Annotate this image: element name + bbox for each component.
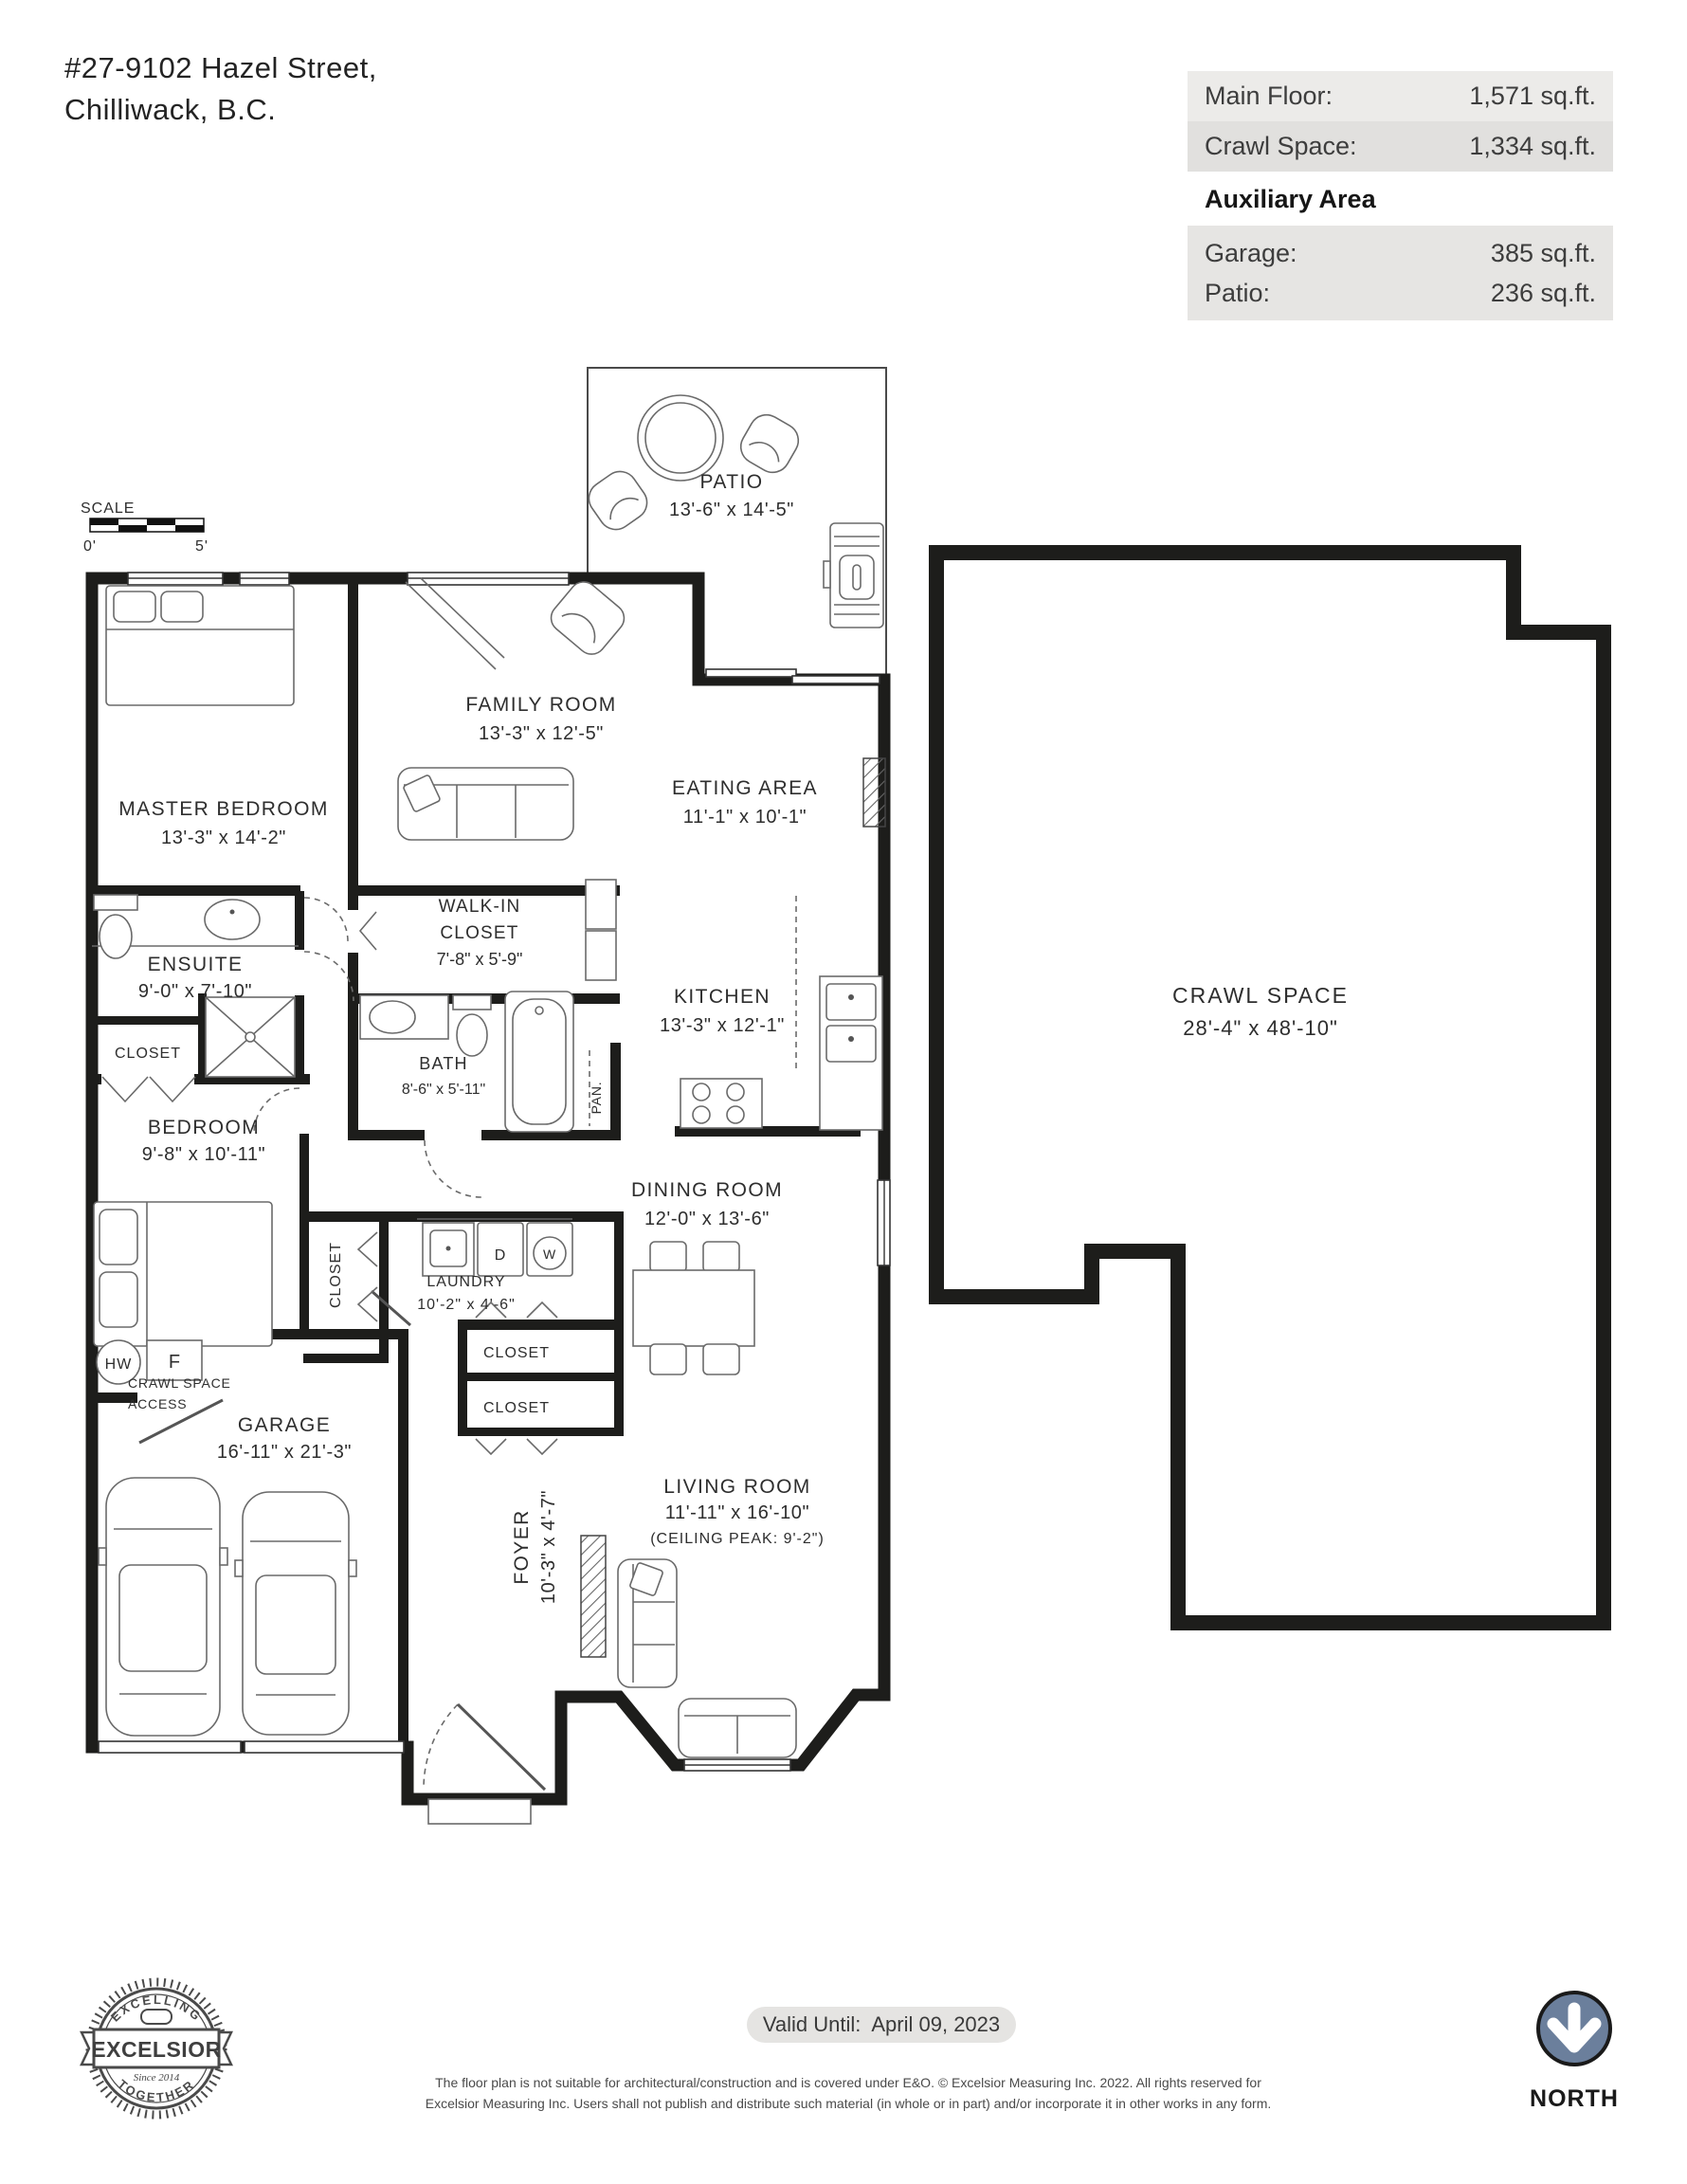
living-room-loveseat	[679, 1699, 796, 1757]
svg-text:12'-0" x 13'-6": 12'-0" x 13'-6"	[644, 1209, 770, 1229]
valid-until-text: Valid Until: April 09, 2023	[763, 2012, 1000, 2037]
svg-text:13'-3" x 14'-2": 13'-3" x 14'-2"	[161, 828, 286, 848]
foyer-half-wall	[581, 1536, 606, 1657]
washer-label: W	[543, 1247, 556, 1262]
svg-text:11'-11" x 16'-10": 11'-11" x 16'-10"	[665, 1502, 810, 1523]
hot-water-tank-label: HW	[105, 1356, 133, 1373]
patio-table	[638, 395, 723, 481]
svg-text:MASTER BEDROOM: MASTER BEDROOM	[118, 798, 328, 820]
svg-text:LIVING ROOM: LIVING ROOM	[663, 1476, 810, 1498]
svg-text:16'-11" x 21'-3": 16'-11" x 21'-3"	[217, 1442, 352, 1463]
furnace-label: F	[169, 1352, 180, 1373]
svg-text:7'-8" x 5'-9": 7'-8" x 5'-9"	[437, 950, 523, 969]
svg-text:9'-0" x 7'-10": 9'-0" x 7'-10"	[138, 981, 252, 1002]
svg-text:CLOSET: CLOSET	[440, 923, 518, 943]
disclaimer-line-1: The floor plan is not suitable for archi…	[365, 2072, 1332, 2093]
scale-bar: SCALE 0' 5'	[81, 500, 209, 555]
window	[408, 573, 569, 585]
window	[240, 573, 289, 585]
bbq-grill	[824, 523, 883, 628]
closet-label-bedroom: CLOSET	[328, 1242, 344, 1308]
bedroom-bed	[94, 1202, 272, 1346]
svg-text:11'-1" x 10'-1": 11'-1" x 10'-1"	[683, 807, 807, 828]
svg-text:13'-3" x 12'-5": 13'-3" x 12'-5"	[479, 723, 604, 744]
room-label-walk-in-closet: WALK-IN CLOSET 7'-8" x 5'-9"	[437, 897, 523, 969]
svg-text:CRAWL SPACE: CRAWL SPACE	[128, 1375, 231, 1391]
garage-doors	[99, 1741, 404, 1753]
svg-text:10'-3" x 4'-7": 10'-3" x 4'-7"	[538, 1490, 559, 1604]
svg-text:(CEILING PEAK: 9'-2"): (CEILING PEAK: 9'-2")	[650, 1531, 825, 1547]
svg-text:9'-8" x 10'-11": 9'-8" x 10'-11"	[142, 1144, 266, 1165]
pantry-label: PAN.	[589, 1082, 604, 1115]
svg-text:CRAWL SPACE: CRAWL SPACE	[1172, 983, 1349, 1008]
room-label-living-room: LIVING ROOM 11'-11" x 16'-10" (CEILING P…	[650, 1476, 825, 1547]
exterior-step	[863, 758, 885, 827]
front-steps	[428, 1799, 531, 1824]
closet-label-hall-1: CLOSET	[483, 1345, 550, 1361]
svg-text:BATH: BATH	[419, 1054, 467, 1073]
window	[128, 573, 223, 585]
window	[878, 1180, 890, 1265]
crawl-space-outline	[936, 553, 1604, 1623]
svg-text:WALK-IN: WALK-IN	[439, 897, 521, 917]
svg-text:EATING AREA: EATING AREA	[672, 777, 818, 799]
excelsior-logo: EXCELLING EXCELSIOR Since 2014 TOGETHER	[74, 1970, 240, 2136]
scale-end: 5'	[195, 538, 209, 555]
floorplan-drawing: SCALE 0' 5'	[0, 0, 1687, 2184]
room-name-patio: PATIO	[700, 471, 764, 493]
dryer-label: D	[495, 1247, 507, 1264]
svg-text:8'-6" x 5'-11": 8'-6" x 5'-11"	[402, 1082, 485, 1098]
master-bed	[106, 586, 294, 705]
svg-text:10'-2" x 4'-6": 10'-2" x 4'-6"	[417, 1297, 516, 1313]
north-label: NORTH	[1530, 2085, 1619, 2112]
window	[684, 1759, 790, 1771]
living-room-sofa	[618, 1559, 677, 1687]
svg-text:13'-3" x 12'-1": 13'-3" x 12'-1"	[660, 1015, 785, 1036]
scale-title: SCALE	[81, 500, 135, 517]
logo-since: Since 2014	[134, 2072, 180, 2084]
svg-text:FOYER: FOYER	[511, 1509, 533, 1584]
family-room-sofa	[398, 768, 573, 840]
svg-text:LAUNDRY: LAUNDRY	[426, 1274, 505, 1290]
svg-text:ACCESS: ACCESS	[128, 1396, 187, 1411]
svg-text:KITCHEN: KITCHEN	[674, 986, 771, 1008]
scale-start: 0'	[83, 538, 97, 555]
garage-car-1	[99, 1478, 227, 1736]
closet-label-hall-2: CLOSET	[483, 1400, 550, 1416]
room-dims-patio: 13'-6" x 14'-5"	[669, 500, 794, 520]
disclaimer: The floor plan is not suitable for archi…	[365, 2072, 1332, 2114]
svg-text:GARAGE: GARAGE	[238, 1414, 331, 1436]
tape-measure-icon	[141, 2010, 172, 2024]
north-indicator: NORTH	[1521, 1983, 1627, 2116]
valid-until-badge: Valid Until: April 09, 2023	[747, 2007, 1016, 2043]
svg-text:DINING ROOM: DINING ROOM	[631, 1179, 783, 1201]
floorplan-page: #27-9102 Hazel Street, Chilliwack, B.C. …	[0, 0, 1687, 2184]
garage-car-2	[235, 1492, 356, 1735]
svg-text:28'-4" x 48'-10": 28'-4" x 48'-10"	[1183, 1016, 1338, 1040]
logo-name: EXCELSIOR	[91, 2037, 221, 2062]
svg-text:FAMILY ROOM: FAMILY ROOM	[465, 694, 616, 716]
closet-label-master: CLOSET	[115, 1046, 181, 1062]
laundry-appliances: D W	[417, 1219, 572, 1276]
svg-text:ENSUITE: ENSUITE	[148, 954, 244, 975]
svg-text:BEDROOM: BEDROOM	[148, 1117, 260, 1138]
disclaimer-line-2: Excelsior Measuring Inc. Users shall not…	[365, 2093, 1332, 2114]
